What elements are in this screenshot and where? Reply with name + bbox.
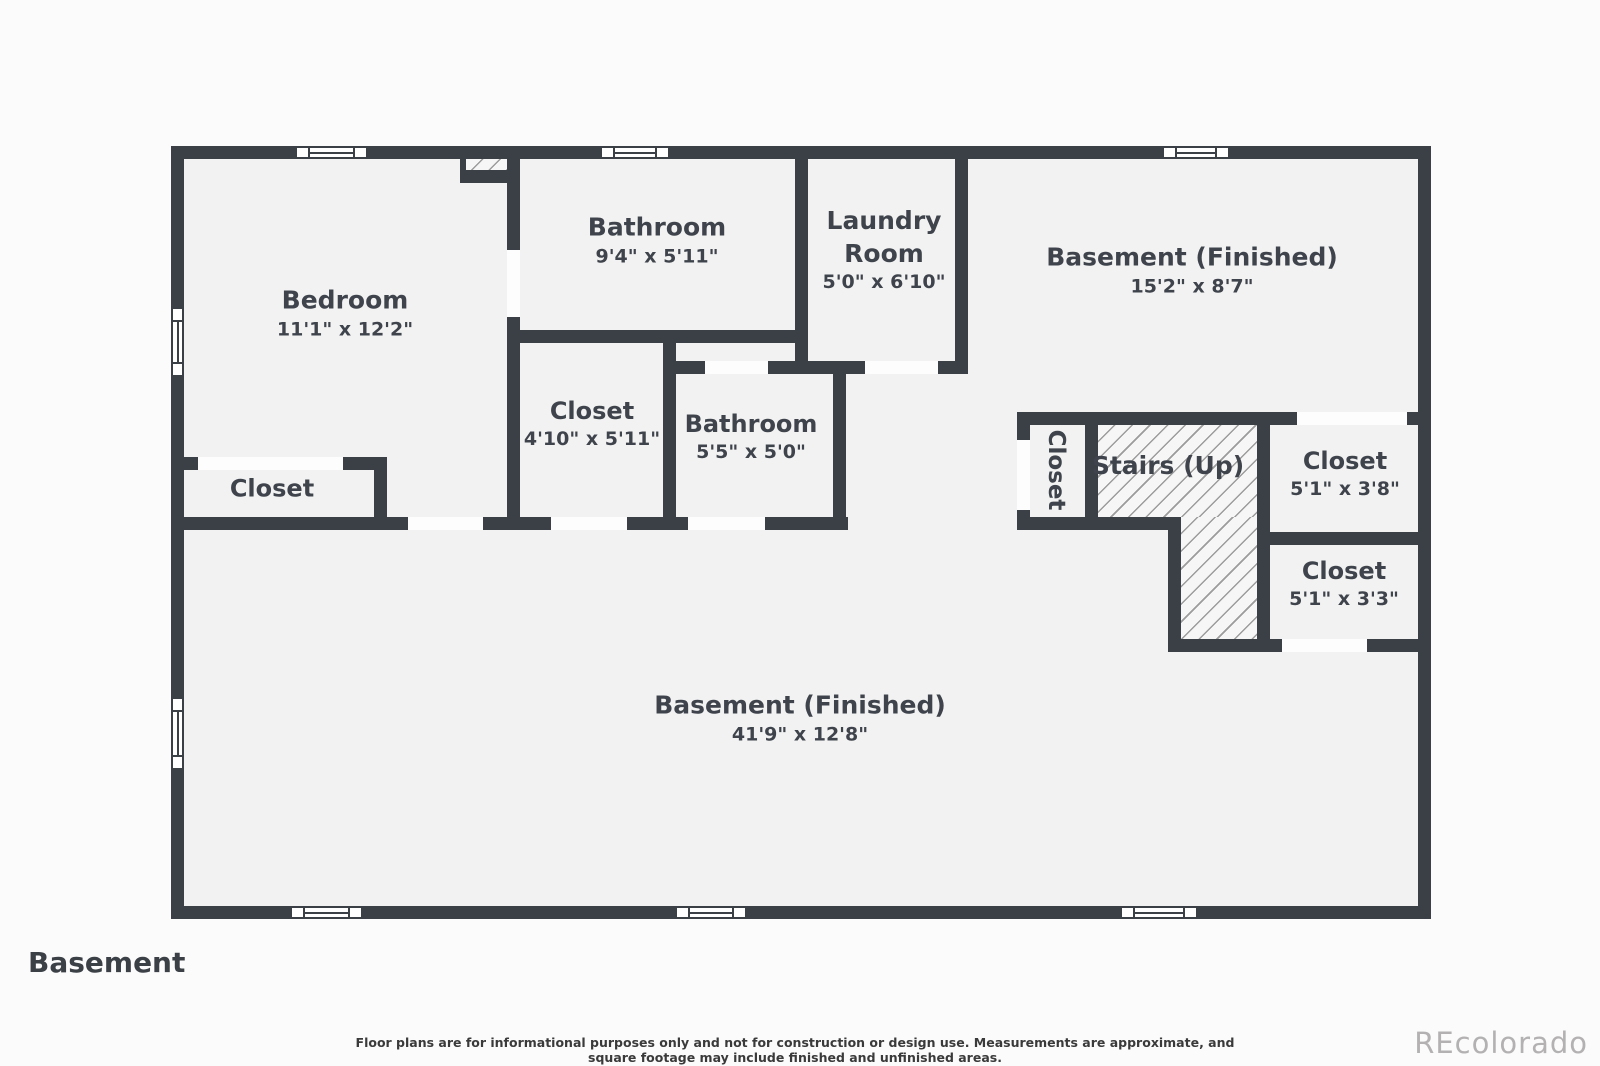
wall-bathroom1-bottom (507, 330, 808, 343)
window-top-1 (295, 146, 368, 159)
room-dims: 5'5" x 5'0" (685, 440, 818, 465)
room-dims: 5'1" x 3'3" (1289, 587, 1399, 612)
disclaimer-text: Floor plans are for informational purpos… (350, 1035, 1240, 1065)
room-name: Basement (Finished) (1046, 241, 1338, 274)
wall-stairs-lower-left (1168, 517, 1181, 652)
wall-closet-hall-right (663, 343, 676, 530)
room-dims: 5'1" x 3'8" (1290, 477, 1400, 502)
wall-laundry-right (955, 159, 968, 374)
stairs-hatch-lower (1181, 517, 1257, 639)
room-dims: 41'9" x 12'8" (654, 722, 946, 747)
door-opening-closet-vertical (1017, 440, 1030, 510)
room-name: Bathroom (588, 211, 726, 244)
room-dims: 9'4" x 5'11" (588, 244, 726, 269)
room-name: Laundry Room (814, 205, 954, 270)
wall-closets-divider (1257, 532, 1431, 545)
room-name: Closet (524, 396, 660, 427)
room-label-closet-hall: Closet 4'10" x 5'11" (524, 396, 660, 452)
room-label-bathroom-2: Bathroom 5'5" x 5'0" (685, 409, 818, 465)
door-opening-laundry (865, 361, 938, 374)
room-label-closet-right-upper: Closet 5'1" x 3'8" (1290, 446, 1400, 502)
door-opening-closet-right-lower (1282, 639, 1367, 652)
window-pane-line (303, 912, 350, 914)
room-name: Closet (230, 473, 314, 504)
wall-stairs-bottom-left-run (1017, 517, 1181, 530)
window-bottom-2 (675, 906, 747, 919)
window-pane-line (688, 912, 734, 914)
door-opening-bedroom (507, 250, 520, 317)
room-label-bathroom-1: Bathroom 9'4" x 5'11" (588, 211, 726, 268)
room-label-bedroom: Bedroom 11'1" x 12'2" (277, 284, 413, 341)
window-bottom-1 (290, 906, 363, 919)
wall-bathroom2-right (833, 361, 846, 530)
door-opening-bathroom2-top (705, 361, 768, 374)
wall-laundry-left (795, 159, 808, 374)
wall-entry-stub-left (460, 159, 466, 183)
room-label-basement-finished-upper: Basement (Finished) 15'2" x 8'7" (1046, 241, 1338, 298)
wall-outer-left (171, 146, 184, 919)
window-pane-line (613, 152, 657, 154)
window-left-2 (171, 697, 184, 770)
room-label-stairs-up: Stairs (Up) (1092, 450, 1244, 483)
door-opening-closet-hall (551, 517, 627, 530)
floor-plan-page: Bedroom 11'1" x 12'2" Bathroom 9'4" x 5'… (0, 0, 1600, 1066)
room-name: Bathroom (685, 409, 818, 440)
room-name: Closet (1290, 446, 1400, 477)
window-pane-line (308, 152, 355, 154)
room-name: Closet (1289, 556, 1399, 587)
room-label-basement-finished-main: Basement (Finished) 41'9" x 12'8" (654, 689, 946, 746)
room-dims: 11'1" x 12'2" (277, 317, 413, 342)
room-name: Basement (Finished) (654, 689, 946, 722)
door-opening-bathroom2-bottom (688, 517, 765, 530)
room-name: Stairs (Up) (1092, 450, 1244, 483)
room-dims: 15'2" x 8'7" (1046, 274, 1338, 299)
room-dims: 4'10" x 5'11" (524, 427, 660, 452)
room-label-laundry-room: Laundry Room 5'0" x 6'10" (814, 205, 954, 295)
window-top-3 (1162, 146, 1230, 159)
room-label-closet-right-lower: Closet 5'1" x 3'3" (1289, 556, 1399, 612)
door-opening-closet-right-upper (1297, 412, 1407, 425)
window-left-1 (171, 307, 184, 377)
window-pane-line (177, 320, 179, 364)
window-pane-line (1133, 912, 1185, 914)
room-label-closet-vertical: Closet (1043, 430, 1069, 511)
recolorado-watermark: REcolorado (1414, 1026, 1588, 1060)
room-label-closet-bedroom: Closet (230, 473, 314, 504)
window-top-2 (600, 146, 670, 159)
window-pane-line (177, 710, 179, 757)
room-name: Bedroom (277, 284, 413, 317)
window-bottom-3 (1120, 906, 1198, 919)
room-dims: 5'0" x 6'10" (814, 270, 954, 295)
wall-bedroom-divider (507, 159, 520, 530)
window-pane-line (1175, 152, 1217, 154)
floor-title: Basement (28, 946, 185, 979)
door-opening-closet-bedroom (198, 457, 343, 470)
door-opening-hall (408, 517, 483, 530)
